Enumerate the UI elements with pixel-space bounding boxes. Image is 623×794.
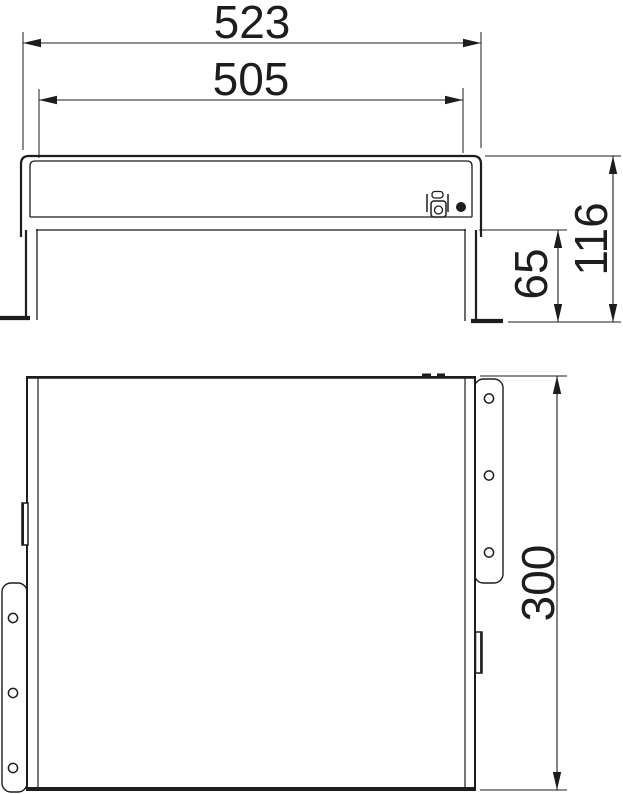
dimension-drawing: 523 505 116 65: [0, 0, 623, 794]
box-body: [26, 375, 476, 789]
fastening-dot-icon: [456, 202, 466, 212]
arrowhead-up-icon: [554, 230, 562, 248]
side-view: 300: [2, 375, 567, 792]
screw-hole: [484, 394, 493, 403]
grounding-clamp: [427, 192, 466, 218]
arrowhead-up-icon: [609, 156, 617, 174]
front-view: 523 505 116 65: [0, 0, 621, 322]
profile-body: [0, 156, 503, 321]
clamp-screw-hole: [435, 206, 443, 214]
technical-drawing-canvas: 523 505 116 65: [0, 0, 623, 794]
arrowhead-right-icon: [445, 96, 463, 104]
arrowhead-left-icon: [39, 96, 57, 104]
arrowhead-down-icon: [553, 772, 561, 790]
arrowhead-right-icon: [463, 39, 481, 47]
screw-hole: [8, 763, 17, 772]
clamp-top-pill: [432, 192, 443, 199]
dim-leg-height: 65: [479, 230, 567, 322]
box-outline: [27, 377, 475, 789]
arrowhead-down-icon: [609, 304, 617, 322]
dim-label-total-height: 116: [565, 202, 617, 275]
screw-hole: [484, 471, 493, 480]
dim-inner-width: 505: [39, 53, 463, 158]
dim-label-side-height: 300: [512, 545, 564, 622]
arrowhead-left-icon: [23, 39, 41, 47]
dim-label-leg-height: 65: [505, 248, 557, 299]
screw-hole: [484, 548, 493, 557]
dim-label-overall-width: 523: [214, 0, 291, 48]
rail-inner-contour: [30, 161, 472, 217]
screw-hole: [8, 688, 17, 697]
rail-outer-contour: [21, 156, 481, 237]
arrowhead-down-icon: [554, 304, 562, 322]
screw-hole: [8, 613, 17, 622]
dim-label-inner-width: 505: [213, 53, 290, 105]
arrowhead-up-icon: [553, 376, 561, 394]
